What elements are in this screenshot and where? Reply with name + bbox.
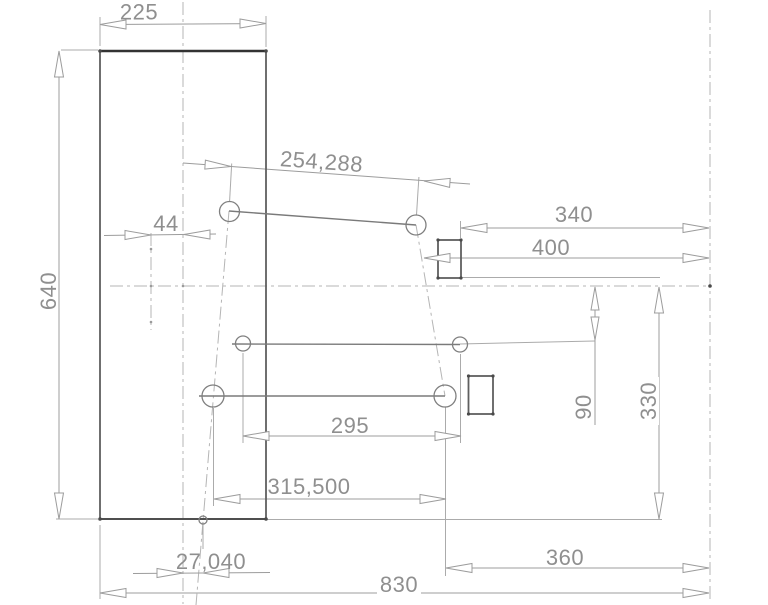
slanted-centerline-left: [196, 211, 229, 605]
dimension-lines: [59, 24, 709, 594]
corner-dot: [491, 374, 494, 377]
arrow-400-left: [424, 254, 450, 263]
arrow-340-left: [461, 224, 487, 233]
ext-254-right: [417, 177, 419, 215]
cad-drawing: 225 640 254,288 44 340 400 90 330 295 31…: [0, 0, 768, 605]
dim-label-640: 640: [36, 272, 61, 310]
arrow-254-left: [205, 160, 231, 169]
centerline-dot: [150, 248, 153, 251]
arrow-90-bottom: [591, 317, 599, 340]
arrow-295-right: [435, 432, 461, 441]
dim-label-225: 225: [120, 0, 158, 25]
arrow-315-right: [420, 495, 446, 504]
hole-link-top: [229, 211, 416, 225]
centerline-dot: [150, 285, 153, 288]
corner-dot: [459, 238, 462, 241]
extension-lines: [56, 16, 662, 599]
dim-label-400: 400: [532, 235, 570, 260]
dim-label-44: 44: [153, 211, 178, 236]
dim-label-330: 330: [636, 382, 661, 420]
corner-dot: [98, 517, 102, 521]
dim-label-90: 90: [571, 394, 596, 419]
hole-link-mid: [232, 344, 460, 345]
arrow-330-bottom: [655, 493, 664, 519]
arrow-830-right: [683, 589, 709, 598]
ext-254-left: [230, 164, 232, 202]
dim-label-315500: 315,500: [267, 474, 350, 499]
arrow-315-left: [214, 495, 240, 504]
arrow-44-left: [125, 231, 151, 240]
centerlines: [110, 2, 711, 605]
arrowheads: [55, 19, 710, 598]
corner-dot: [98, 49, 102, 53]
dim-label-27040: 27,040: [176, 549, 246, 574]
dim-label-830: 830: [380, 572, 418, 597]
arrow-360-right: [683, 564, 709, 573]
corner-dot: [467, 374, 470, 377]
dim-label-295: 295: [331, 413, 369, 438]
corner-dot: [436, 238, 439, 241]
ref-line-90: [460, 341, 595, 344]
corner-dot: [467, 412, 470, 415]
arrow-90-top: [591, 287, 599, 310]
centerline-dot: [150, 321, 153, 324]
arrow-400-right: [683, 254, 709, 263]
cad-drawing-canvas: 225 640 254,288 44 340 400 90 330 295 31…: [0, 0, 768, 605]
corner-dot: [491, 412, 494, 415]
arrow-640-top: [55, 51, 64, 77]
arrow-830-left: [100, 589, 126, 598]
dim-label-340: 340: [555, 202, 593, 227]
centerline-dot: [182, 285, 185, 288]
dim-label-360: 360: [546, 545, 584, 570]
centerline-cross-dot: [708, 284, 712, 288]
arrow-44-right: [184, 230, 210, 239]
corner-dot: [264, 49, 268, 53]
slot-lower: [469, 376, 494, 414]
corner-dot: [459, 276, 462, 279]
slanted-centerline-right: [416, 225, 445, 396]
arrow-340-right: [683, 224, 709, 233]
arrow-295-left: [243, 432, 269, 441]
arrow-640-bottom: [55, 493, 64, 519]
corner-dot: [264, 517, 268, 521]
corner-dot: [436, 276, 439, 279]
arrow-254-right: [424, 178, 450, 187]
arrow-225-right: [240, 19, 266, 28]
arrow-330-top: [655, 287, 664, 313]
dim-label-254288: 254,288: [279, 146, 364, 177]
markers: [98, 49, 712, 521]
arrow-360-left: [446, 564, 472, 573]
dimension-labels: 225 640 254,288 44 340 400 90 330 295 31…: [36, 0, 661, 597]
part-geometry: [100, 51, 493, 524]
